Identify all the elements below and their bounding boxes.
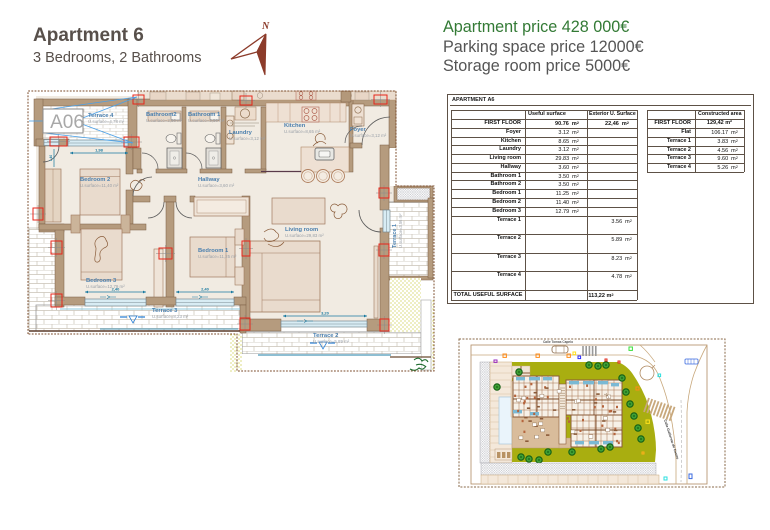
svg-text:1,98: 1,98 (95, 148, 104, 153)
svg-text:U.surface=3,12 m²: U.surface=3,12 m² (350, 133, 387, 138)
svg-text:Calle Tomas Capelo: Calle Tomas Capelo (543, 340, 573, 344)
svg-text:U.surface=11,40 m²: U.surface=11,40 m² (80, 183, 119, 188)
svg-text:U.surface=3,50 m²: U.surface=3,50 m² (146, 118, 183, 123)
svg-text:U.surface=3,56 m²: U.surface=3,56 m² (398, 213, 403, 248)
svg-text:A06: A06 (50, 112, 84, 133)
svg-text:U.surface=3,60 m²: U.surface=3,60 m² (198, 183, 235, 188)
svg-text:U.surface=29,83 m²: U.surface=29,83 m² (285, 233, 324, 238)
svg-text:U.surface=8,65 m²: U.surface=8,65 m² (284, 129, 321, 134)
svg-text:U.surface=3,50 m²: U.surface=3,50 m² (188, 118, 225, 123)
svg-text:U.surface=5,89 m²: U.surface=5,89 m² (313, 339, 350, 344)
svg-text:U.surface=11,25 m²: U.surface=11,25 m² (198, 254, 237, 259)
svg-text:U.surface=8,23 m²: U.surface=8,23 m² (152, 314, 189, 319)
svg-text:3,20: 3,20 (321, 311, 330, 316)
svg-text:1,40: 1,40 (49, 155, 53, 161)
svg-text:Calle Guillermo de Castro: Calle Guillermo de Castro (663, 419, 680, 460)
svg-text:U.surface=12,79 m²: U.surface=12,79 m² (86, 284, 125, 289)
svg-text:U.surface=3,12 m²: U.surface=3,12 m² (229, 136, 266, 141)
svg-text:U.surface=4,78 m²: U.surface=4,78 m² (88, 119, 125, 124)
svg-text:2,40: 2,40 (201, 287, 210, 292)
